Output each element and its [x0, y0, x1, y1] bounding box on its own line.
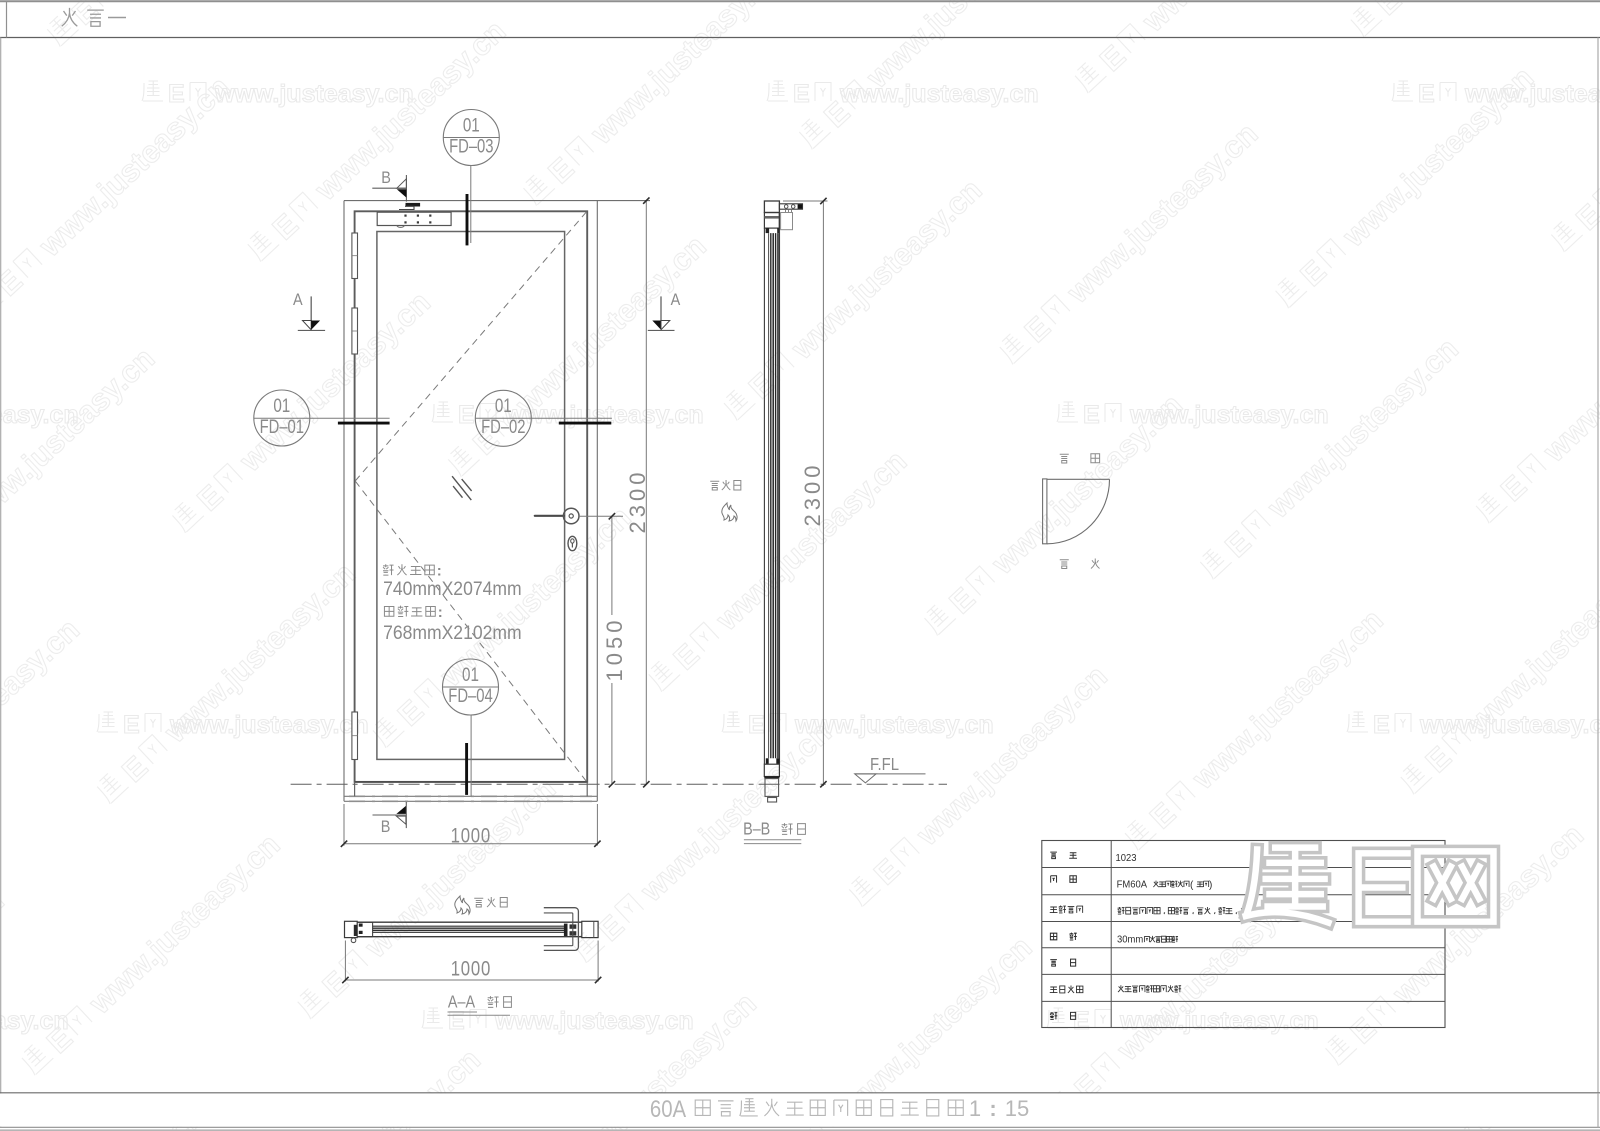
svg-text:FD–02: FD–02: [481, 416, 525, 437]
svg-text:E: E: [168, 80, 185, 108]
svg-text:www.justeasy.cn: www.justeasy.cn: [1464, 80, 1600, 108]
svg-text:2300: 2300: [800, 462, 825, 527]
svg-text:FD–04: FD–04: [448, 685, 492, 706]
svg-text:1023: 1023: [1116, 853, 1137, 865]
svg-text:FD–03: FD–03: [449, 136, 493, 157]
svg-text:740mmX2074mm: 740mmX2074mm: [383, 577, 521, 599]
svg-text:B: B: [381, 169, 391, 187]
svg-text:A: A: [671, 291, 681, 309]
svg-text:www.justeasy.cn: www.justeasy.cn: [169, 711, 369, 739]
svg-text:01: 01: [495, 394, 512, 416]
svg-text:E: E: [748, 711, 765, 739]
svg-text:1: 1: [969, 1096, 981, 1121]
svg-text:www.justeasy.cn: www.justeasy.cn: [494, 1007, 694, 1035]
svg-text:30mm: 30mm: [1117, 934, 1143, 946]
svg-text:E: E: [1073, 1007, 1090, 1035]
svg-text:E: E: [1083, 401, 1100, 429]
svg-text::: :: [438, 604, 443, 621]
svg-text:01: 01: [463, 114, 480, 136]
svg-text:F.FL: F.FL: [870, 755, 899, 774]
svg-text:): ): [1209, 880, 1212, 891]
svg-text:www.justeasy.cn: www.justeasy.cn: [0, 1007, 69, 1035]
svg-text:FM60A: FM60A: [1117, 879, 1148, 891]
svg-text:E: E: [1418, 80, 1435, 108]
svg-text:www.justeasy.cn: www.justeasy.cn: [0, 401, 79, 429]
svg-text:768mmX2102mm: 768mmX2102mm: [383, 621, 521, 643]
svg-text:2300: 2300: [625, 469, 650, 534]
svg-text:www.justeasy.cn: www.justeasy.cn: [214, 80, 414, 108]
svg-text:E: E: [793, 80, 810, 108]
svg-text:B–B: B–B: [743, 820, 770, 839]
svg-text:www.justeasy.cn: www.justeasy.cn: [794, 711, 994, 739]
svg-text:www.justeasy.cn: www.justeasy.cn: [1119, 1007, 1319, 1035]
svg-text:1000: 1000: [451, 958, 491, 981]
svg-text:A: A: [293, 291, 303, 309]
svg-text:www.justeasy.cn: www.justeasy.cn: [1419, 711, 1600, 739]
svg-text:www.justeasy.cn: www.justeasy.cn: [504, 401, 704, 429]
svg-text:www.justeasy.cn: www.justeasy.cn: [1129, 401, 1329, 429]
svg-text:www.justeasy.cn: www.justeasy.cn: [839, 80, 1039, 108]
svg-text:FD–01: FD–01: [260, 416, 304, 437]
svg-text:E: E: [458, 401, 475, 429]
svg-text:1050: 1050: [602, 617, 627, 682]
svg-text::: :: [989, 1096, 996, 1121]
svg-text:60A: 60A: [650, 1095, 686, 1122]
svg-text:15: 15: [1005, 1096, 1029, 1121]
svg-text:B: B: [381, 818, 391, 836]
svg-text:A–A: A–A: [448, 993, 475, 1012]
svg-text:1000: 1000: [451, 825, 491, 848]
svg-text:01: 01: [462, 663, 479, 685]
svg-text:01: 01: [273, 394, 290, 416]
svg-text:E: E: [1373, 711, 1390, 739]
svg-text:E: E: [123, 711, 140, 739]
